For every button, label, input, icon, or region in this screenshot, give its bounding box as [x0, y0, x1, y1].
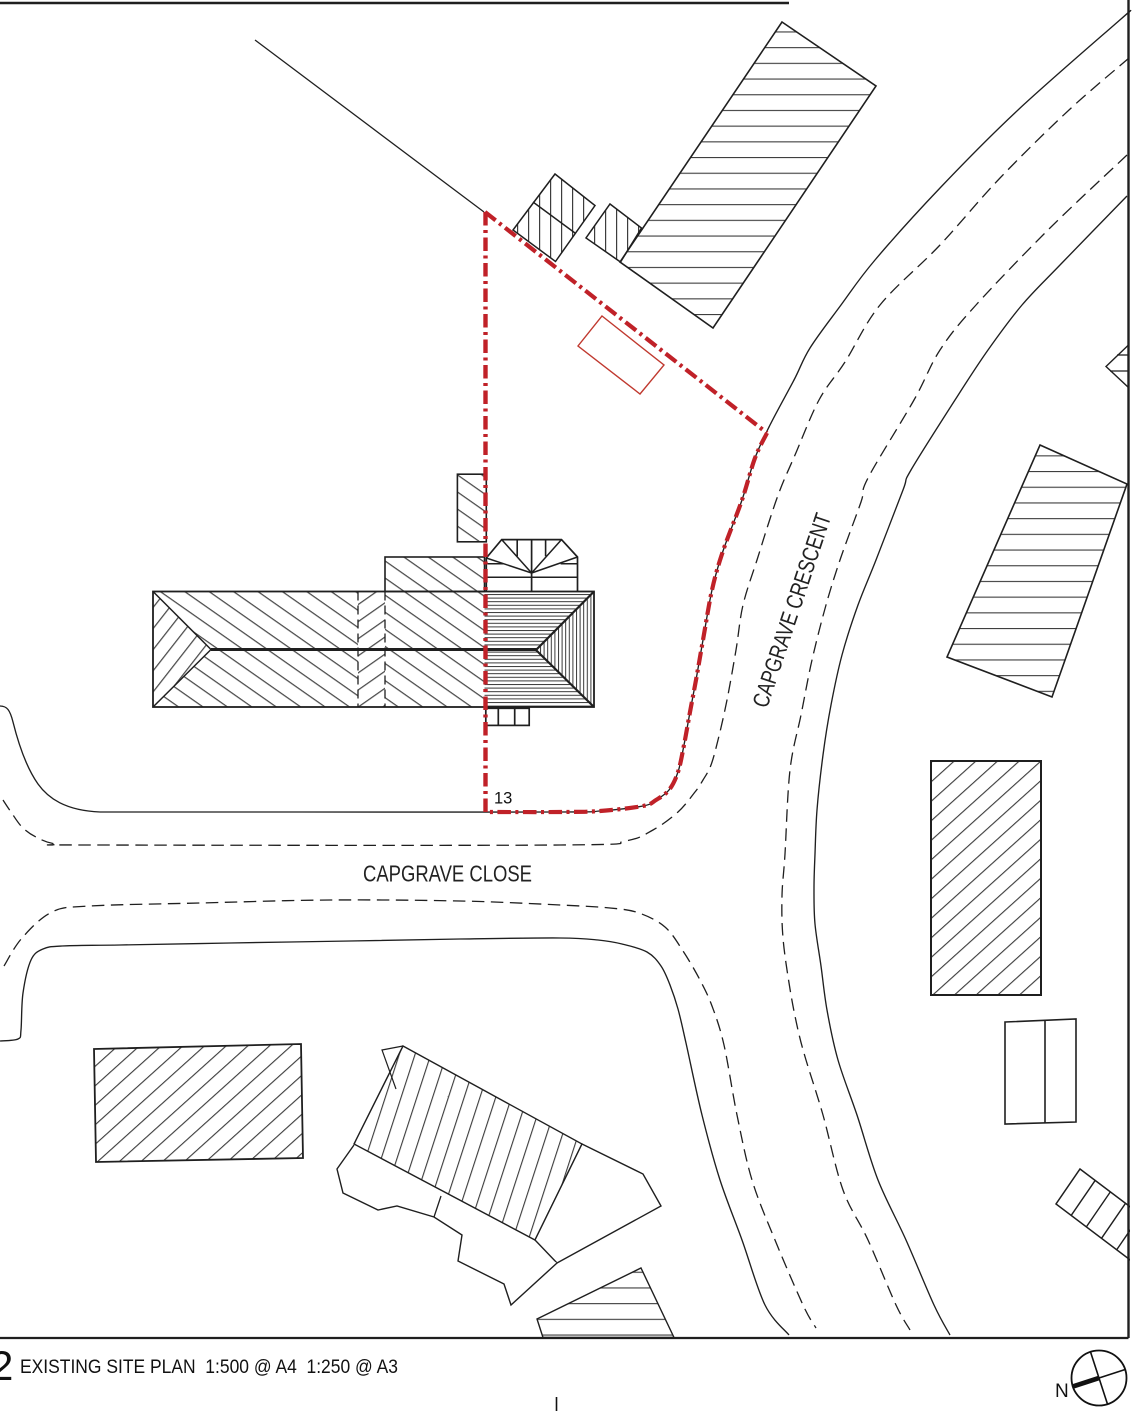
svg-text:2: 2 [0, 1342, 13, 1389]
svg-text:N: N [1055, 1381, 1069, 1402]
svg-text:EXISTING SITE PLAN 1:500 @ A4: EXISTING SITE PLAN 1:500 @ A4 1:250 @ A3 [20, 1357, 398, 1378]
svg-text:13: 13 [494, 790, 512, 808]
svg-text:CAPGRAVE CRESCENT: CAPGRAVE CRESCENT [747, 510, 836, 711]
svg-text:CAPGRAVE CLOSE: CAPGRAVE CLOSE [363, 861, 532, 887]
